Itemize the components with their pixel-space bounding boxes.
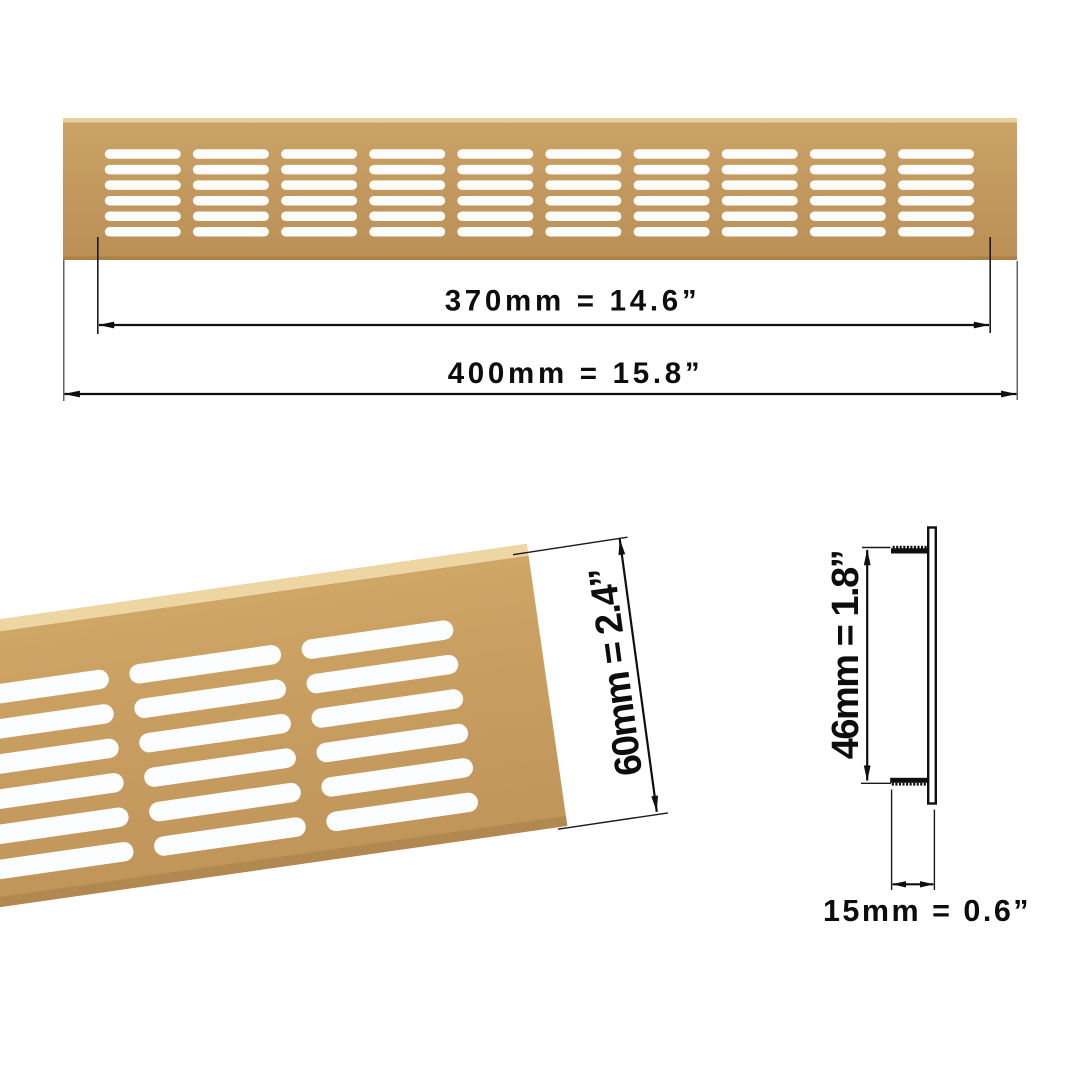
svg-text:46mm = 1.8”: 46mm = 1.8” [825,551,867,759]
svg-text:400mm = 15.8”: 400mm = 15.8” [448,357,704,390]
svg-text:15mm = 0.6”: 15mm = 0.6” [823,894,1031,928]
svg-text:370mm = 14.6”: 370mm = 14.6” [445,285,701,318]
